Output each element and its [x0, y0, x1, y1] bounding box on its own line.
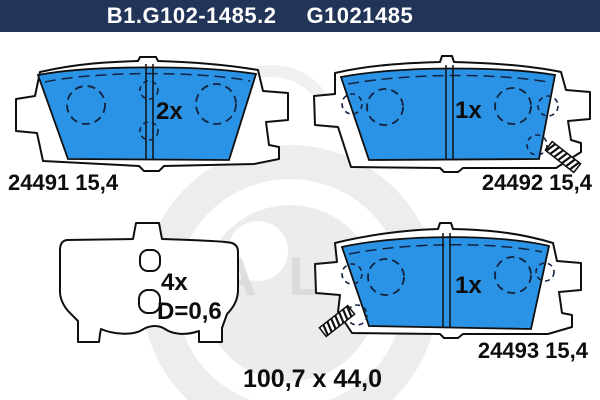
quantity-label-shim: 4x: [161, 271, 188, 295]
pad-bottom-right-drawing: [315, 223, 581, 338]
part-number-pad3: 24493 15,4: [466, 340, 588, 362]
part-number-pad2: 24492 15,4: [470, 172, 592, 194]
pad-top-left-drawing: [16, 57, 288, 171]
quantity-label-pad3: 1x: [455, 274, 482, 298]
friction-material: [342, 237, 549, 329]
pad-top-right-drawing: [314, 56, 590, 172]
ean-number: G1021485: [306, 3, 413, 29]
part-number-pad1: 24491 15,4: [8, 172, 118, 194]
header-bar: B1.G102-1485.2 G1021485: [0, 0, 600, 32]
brake-pad-product-sheet: B1.G102-1485.2 G1021485 GALFER: [0, 0, 600, 400]
quantity-label-pad2: 1x: [455, 99, 482, 123]
friction-material: [341, 68, 555, 160]
pad-dimensions-label: 100,7 x 44,0: [243, 367, 382, 392]
thickness-label-shim: D=0,6: [157, 300, 222, 324]
catalog-number: B1.G102-1485.2: [107, 3, 277, 29]
quantity-label-pad1: 2x: [156, 100, 183, 124]
shim-hole: [140, 250, 160, 271]
